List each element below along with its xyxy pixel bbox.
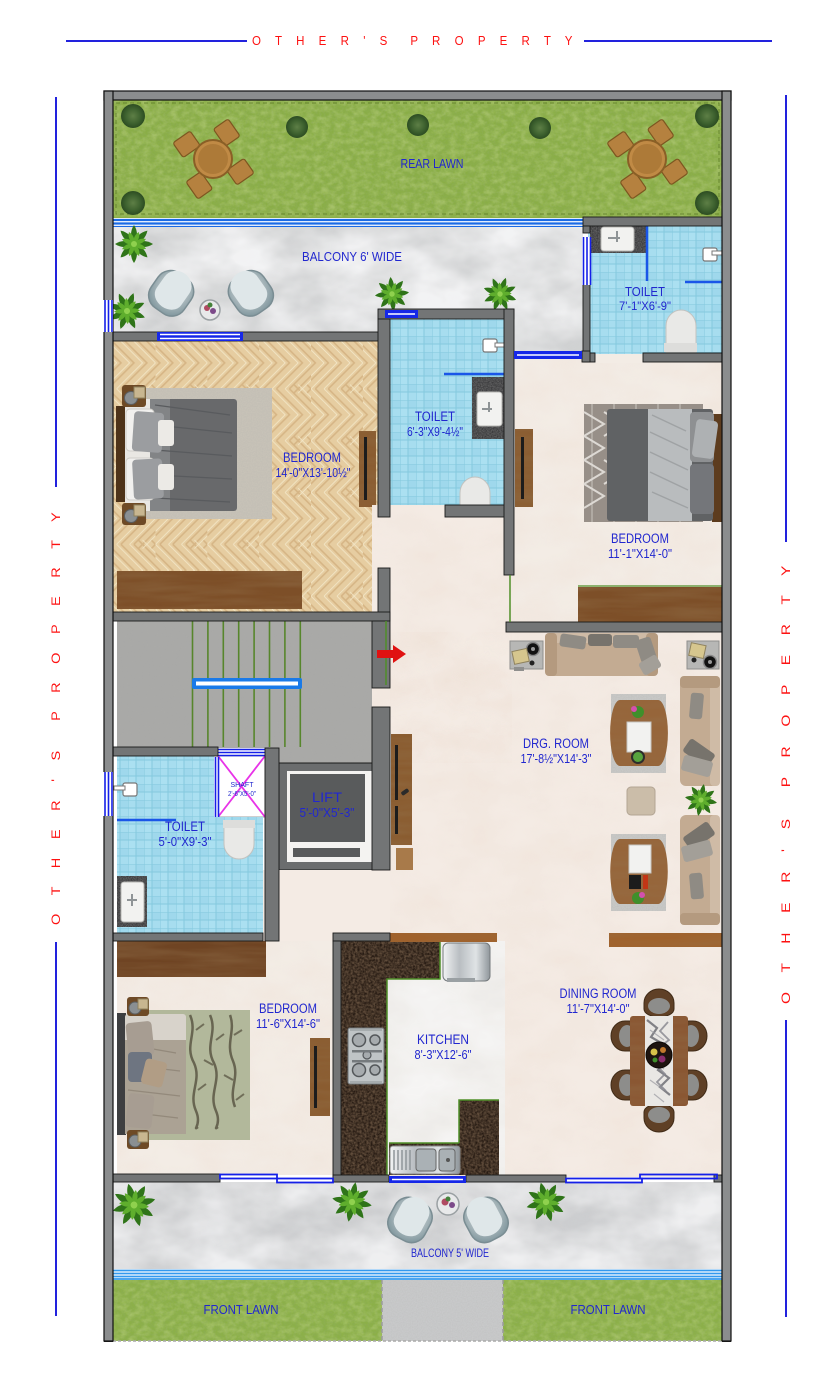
svg-text:FRONT LAWN: FRONT LAWN bbox=[204, 1302, 279, 1317]
svg-text:O T H E R ' S P R O P E R T Y: O T H E R ' S P R O P E R T Y bbox=[49, 505, 63, 925]
svg-text:LIFT: LIFT bbox=[312, 790, 342, 805]
svg-text:DINING ROOM: DINING ROOM bbox=[560, 986, 637, 1001]
svg-text:BEDROOM: BEDROOM bbox=[611, 531, 669, 546]
svg-text:BALCONY 5' WIDE: BALCONY 5' WIDE bbox=[411, 1246, 489, 1260]
svg-text:O T H E R ' S P R O P E R T Y: O T H E R ' S P R O P E R T Y bbox=[252, 34, 578, 48]
svg-text:11'-1"X14'-0": 11'-1"X14'-0" bbox=[608, 547, 672, 561]
svg-text:TOILET: TOILET bbox=[625, 284, 665, 299]
svg-text:DRG. ROOM: DRG. ROOM bbox=[523, 736, 589, 751]
svg-text:11'-6"X14'-6": 11'-6"X14'-6" bbox=[256, 1017, 320, 1031]
svg-text:FRONT LAWN: FRONT LAWN bbox=[571, 1302, 646, 1317]
svg-text:7'-1"X6'-9": 7'-1"X6'-9" bbox=[619, 299, 671, 313]
svg-text:11'-7"X14'-0": 11'-7"X14'-0" bbox=[567, 1002, 630, 1016]
svg-text:BEDROOM: BEDROOM bbox=[283, 450, 341, 465]
svg-text:5'-0"X5'-3": 5'-0"X5'-3" bbox=[300, 806, 355, 820]
svg-text:BALCONY 6' WIDE: BALCONY 6' WIDE bbox=[302, 249, 402, 264]
svg-text:2'-6"X5'-0": 2'-6"X5'-0" bbox=[228, 791, 256, 798]
svg-text:6'-3"X9'-4½": 6'-3"X9'-4½" bbox=[407, 425, 463, 439]
svg-text:KITCHEN: KITCHEN bbox=[417, 1032, 469, 1047]
svg-text:SHAFT: SHAFT bbox=[231, 780, 254, 789]
svg-text:14'-0"X13'-10½": 14'-0"X13'-10½" bbox=[276, 466, 351, 480]
svg-text:8'-3"X12'-6": 8'-3"X12'-6" bbox=[415, 1048, 472, 1062]
svg-text:O T H E R ' S P R O P E R T Y: O T H E R ' S P R O P E R T Y bbox=[779, 558, 793, 1004]
svg-text:BEDROOM: BEDROOM bbox=[259, 1001, 317, 1016]
svg-text:17'-8½"X14'-3": 17'-8½"X14'-3" bbox=[521, 752, 592, 766]
svg-text:5'-0"X9'-3": 5'-0"X9'-3" bbox=[159, 835, 212, 849]
svg-text:TOILET: TOILET bbox=[415, 409, 455, 424]
svg-text:REAR LAWN: REAR LAWN bbox=[401, 156, 464, 171]
